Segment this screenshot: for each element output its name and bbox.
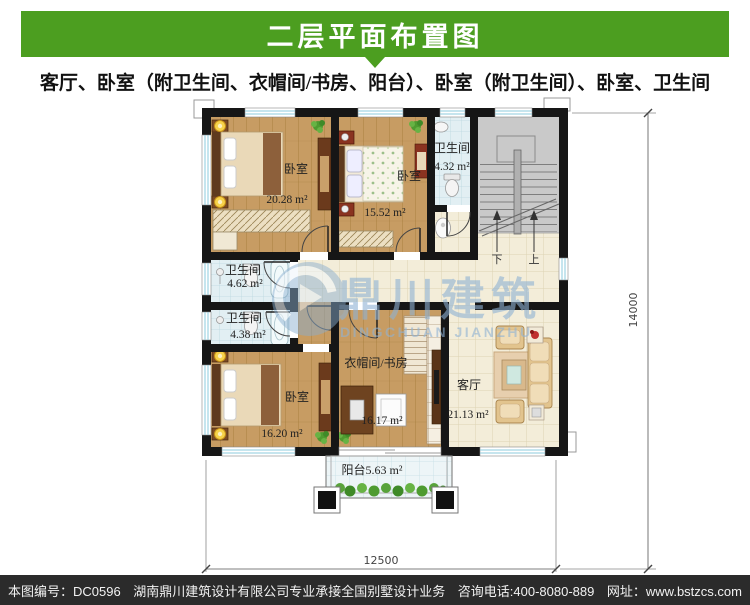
dresser-mirror xyxy=(320,156,329,192)
dresser-mirror xyxy=(417,152,426,170)
pillow-icon xyxy=(347,150,362,172)
room-label: 衣帽间/书房 xyxy=(344,355,407,370)
column-icon xyxy=(436,491,454,509)
window-icon xyxy=(202,135,211,205)
pillow-icon xyxy=(224,398,236,420)
shower-icon xyxy=(217,317,224,324)
lamp-icon xyxy=(215,121,226,132)
living-room-furniture xyxy=(494,326,552,423)
tv-icon xyxy=(434,370,439,404)
dresser-mirror xyxy=(321,380,330,414)
column-icon xyxy=(318,491,336,509)
sink-icon xyxy=(434,122,448,132)
company-name: 湖南鼎川建筑设计有限公司专业承接全国别墅设计业务 xyxy=(133,581,445,600)
bed-headboard xyxy=(212,132,221,196)
pedestal-sink-icon xyxy=(436,218,451,238)
shower-icon xyxy=(217,269,224,276)
lamp-icon xyxy=(215,351,226,362)
room-area: 4.32 m² xyxy=(434,161,470,173)
stair-up-label: 上 xyxy=(529,253,540,266)
pillow-icon xyxy=(224,166,236,188)
watermark-name: 鼎川建筑 xyxy=(338,274,542,325)
window-icon xyxy=(495,108,532,117)
balcony-label: 阳台5.63 m² xyxy=(342,462,403,477)
drawing-number: 本图编号：DC0596 xyxy=(8,581,121,600)
watermark: 鼎川建筑 DINGCHUAN JIANZHU xyxy=(272,262,542,340)
blanket xyxy=(263,133,281,195)
lamp-icon xyxy=(215,197,226,208)
room-area: 4.62 m² xyxy=(227,278,263,290)
pillow-icon xyxy=(347,175,362,197)
dimension-width-label: 12500 xyxy=(364,554,399,567)
cabinet-icon xyxy=(213,232,237,250)
window-icon xyxy=(245,108,295,117)
room-area: 16.20 m² xyxy=(261,428,303,440)
room-area: 21.13 m² xyxy=(447,409,489,421)
room-label: 卧室 xyxy=(397,168,421,183)
room-area: 15.52 m² xyxy=(364,207,406,219)
bed-headboard xyxy=(212,364,221,426)
room-label: 卧室 xyxy=(285,389,309,404)
footer-bar: 本图编号：DC0596 湖南鼎川建筑设计有限公司专业承接全国别墅设计业务 咨询电… xyxy=(0,575,750,605)
window-icon xyxy=(480,447,545,456)
room-label: 客厅 xyxy=(457,377,481,392)
room-label: 卫生间 xyxy=(225,263,261,277)
balcony: 阳台5.63 m² xyxy=(314,456,458,513)
room-area: 20.28 m² xyxy=(266,194,308,206)
page: 二层平面布置图 客厅、卧室（附卫生间、衣帽间/书房、阳台）、卧室（附卫生间）、卧… xyxy=(0,0,750,605)
lamp-icon xyxy=(215,429,226,440)
phone-number: 咨询电话:400-8080-889 xyxy=(458,581,595,600)
window-icon xyxy=(358,108,403,117)
window-icon xyxy=(559,258,568,280)
room-area: 4.38 m² xyxy=(230,329,266,341)
toilet-icon xyxy=(444,174,460,197)
window-icon xyxy=(222,447,295,456)
pillow-icon xyxy=(224,370,236,392)
wardrobe-icon xyxy=(213,210,310,232)
window-icon xyxy=(202,365,211,435)
room-label: 卫生间 xyxy=(434,141,470,155)
room-label: 卫生间 xyxy=(226,311,262,325)
room-area: 16.17 m² xyxy=(361,415,403,427)
website: 网址：www.bstzcs.com xyxy=(607,581,742,600)
window-icon xyxy=(202,263,211,295)
window-icon xyxy=(440,108,465,117)
wardrobe-icon xyxy=(339,231,393,247)
room-label: 卧室 xyxy=(284,161,308,176)
hall-understair-floor xyxy=(478,233,559,260)
window-icon xyxy=(202,312,211,340)
watermark-latin: DINGCHUAN JIANZHU xyxy=(340,324,533,340)
pillow-icon xyxy=(224,138,236,160)
floor-plan: 下 上 xyxy=(0,0,750,605)
stair-down-label: 下 xyxy=(492,254,503,266)
phone-icon xyxy=(532,408,541,417)
balcony-sliding-door-icon xyxy=(339,447,441,456)
blanket xyxy=(261,365,279,425)
dimension-height-label: 14000 xyxy=(627,293,640,328)
